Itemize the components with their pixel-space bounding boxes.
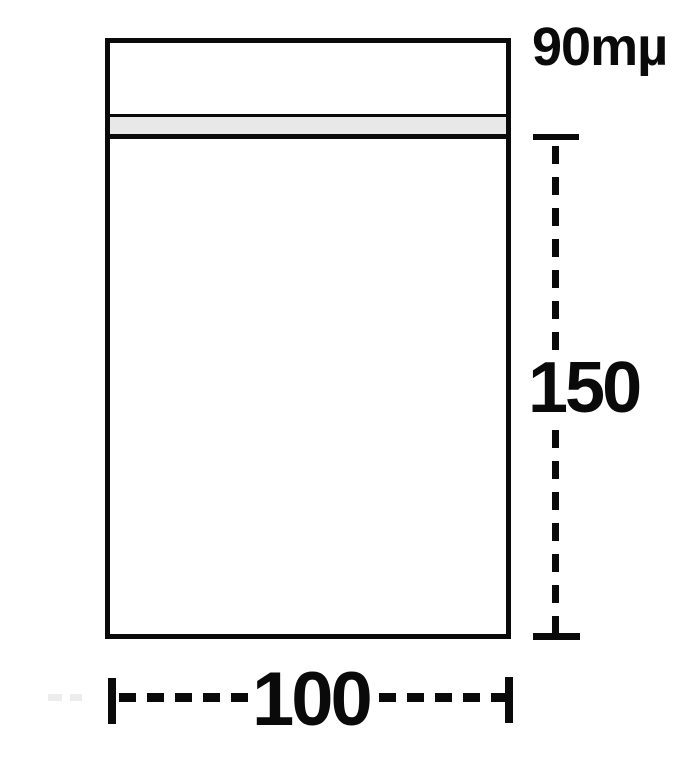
thickness-label: 90mµ — [532, 20, 667, 74]
width-dim-left-tick — [108, 678, 116, 724]
bag-dimension-diagram: { "diagram": { "thickness_label": "90mµ"… — [0, 0, 688, 767]
height-dim-top-tick — [533, 134, 579, 140]
zip-seal-line — [110, 134, 506, 139]
height-dim-dash-upper — [552, 146, 559, 355]
height-label: 150 — [528, 352, 639, 424]
width-label: 100 — [252, 662, 370, 738]
height-dim-dash-lower — [552, 430, 559, 633]
faint-dash-artifact — [48, 694, 82, 701]
width-dim-dash-right — [379, 693, 505, 702]
zip-seal-band — [110, 117, 506, 134]
width-dim-right-tick — [505, 677, 513, 723]
height-dim-bottom-tick — [533, 633, 580, 640]
width-dim-dash-left — [119, 693, 250, 702]
